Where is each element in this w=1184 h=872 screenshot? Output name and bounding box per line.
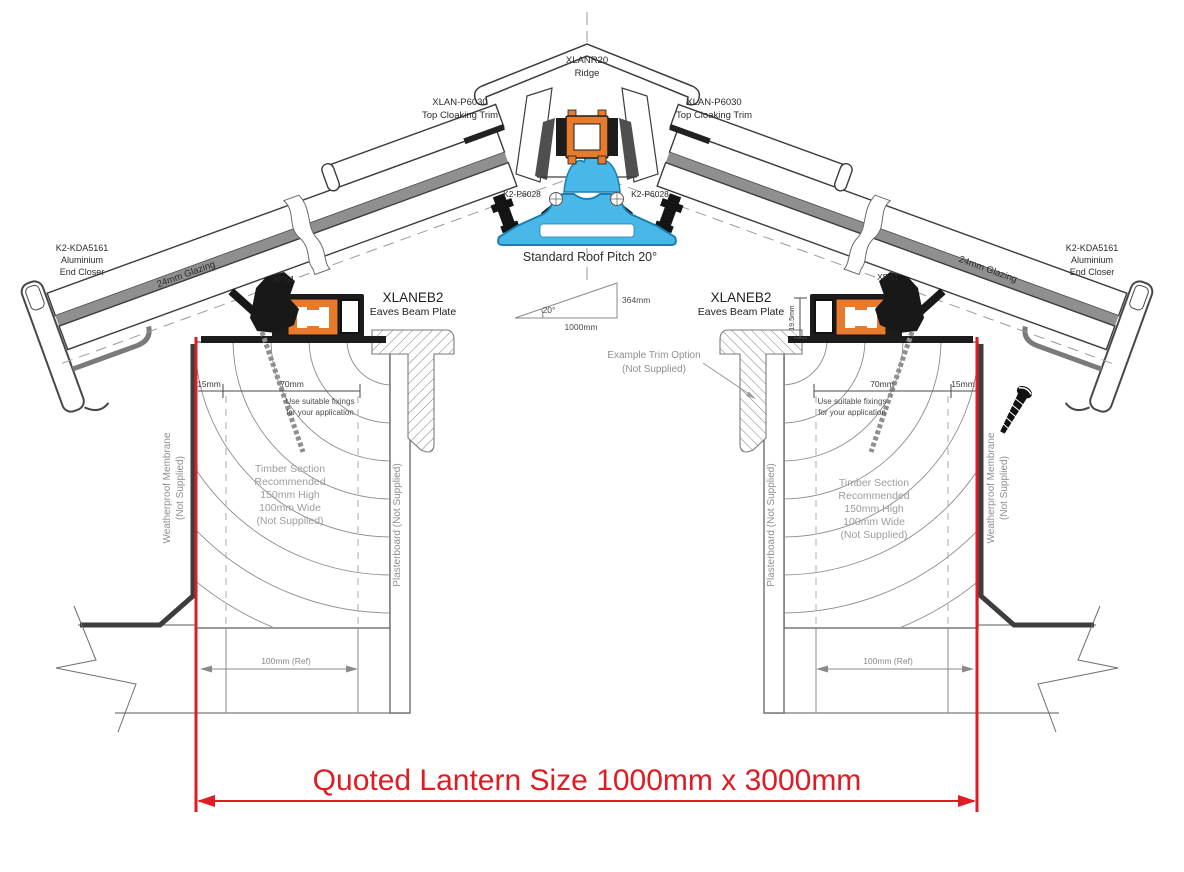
fixing-note-1-right: Use suitable fixings (818, 397, 887, 406)
timber-note-left-1: Timber Section (255, 463, 325, 475)
end-closer-code-left: K2-KDA5161 (56, 243, 109, 253)
eaves-beam-name-left: Eaves Beam Plate (370, 306, 457, 318)
beam-chamber (341, 300, 359, 333)
xps-label-left: XPS1 (273, 274, 295, 284)
cloaking-name-label-left: Top Cloaking Trim (422, 110, 498, 121)
timber-note-right-3: 150mm High (844, 503, 904, 515)
timber-note-left-5: (Not Supplied) (256, 515, 323, 527)
plasterboard-label-right: Plasterboard (Not Supplied) (766, 463, 777, 586)
dim-100mm-left (200, 666, 358, 673)
eaves-beam-code-right: XLANEB2 (711, 290, 772, 305)
trim-option-label-2: (Not Supplied) (622, 364, 686, 375)
dim-19-5mm: 19.5mm (789, 305, 796, 330)
ridge-code-label: XLANR20 (566, 55, 608, 66)
cloaking-name-label-right: Top Cloaking Trim (676, 110, 752, 121)
cloaking-code-label-right: XLAN-P6030 (686, 97, 741, 108)
ref-100mm-left: 100mm (Ref) (261, 656, 311, 666)
ref-100mm-right: 100mm (Ref) (863, 656, 913, 666)
dim-70mm-right: 70mm (870, 379, 894, 389)
end-closer-line3-left: End Closer (60, 267, 105, 277)
end-closer-code-right: K2-KDA5161 (1066, 243, 1119, 253)
eaves-beam-code-left: XLANEB2 (383, 290, 444, 305)
lantern-cross-section-diagram: XLANR20 Ridge XLAN-P6030 Top Cloaking Tr… (0, 0, 1184, 872)
pitch-label: Standard Roof Pitch 20° (523, 250, 657, 264)
fixing-note-2-right: for your application (818, 408, 886, 417)
ridge-clamp-boss-left (550, 193, 563, 206)
ridge-clamp-boss-right (611, 193, 624, 206)
pitch-run-label: 1000mm (564, 322, 597, 332)
timber-note-left-2: Recommended (254, 476, 325, 488)
pitch-rise-label: 364mm (622, 295, 650, 305)
end-closer-line3-right: End Closer (1070, 267, 1115, 277)
ridge-name-label: Ridge (575, 68, 600, 79)
ridge-clamp-label-left: K2-P6028 (503, 189, 541, 199)
plasterboard-label-left: Plasterboard (Not Supplied) (392, 463, 403, 586)
end-closer-line2-right: Aluminium (1071, 255, 1113, 265)
dim-15mm-right: 15mm (951, 379, 975, 389)
cloaking-code-label-left: XLAN-P6030 (432, 97, 487, 108)
timber-note-left-4: 100mm Wide (259, 502, 321, 514)
quoted-size-label: Quoted Lantern Size 1000mm x 3000mm (313, 764, 862, 797)
ridge-thermal-break (556, 110, 618, 164)
end-closer-line2-left: Aluminium (61, 255, 103, 265)
membrane-label-2-right: (Not Supplied) (999, 456, 1010, 520)
membrane-label-2-left: (Not Supplied) (175, 456, 186, 520)
dim-100mm-right (816, 666, 974, 673)
pitch-triangle (515, 283, 617, 318)
eaves-beam-name-right: Eaves Beam Plate (698, 306, 785, 318)
fixing-note-2-left: for your application (286, 408, 354, 417)
membrane-label-1-left: Weatherproof Membrane (162, 432, 173, 543)
timber-note-right-1: Timber Section (839, 477, 909, 489)
timber-note-right-4: 100mm Wide (843, 516, 905, 528)
end-closer-foot (84, 399, 109, 414)
lantern-section-drawing: XLANR20 Ridge XLAN-P6030 Top Cloaking Tr… (0, 0, 1184, 872)
timber-note-right-2: Recommended (838, 490, 909, 502)
timber-note-right-5: (Not Supplied) (840, 529, 907, 541)
ridge-clamp-label-right: K2-P6028 (631, 189, 669, 199)
trim-option-label-1: Example Trim Option (607, 350, 700, 361)
pitch-angle-label: 20° (543, 305, 556, 315)
membrane-label-1-right: Weatherproof Membrane (986, 432, 997, 543)
timber-note-left-3: 150mm High (260, 489, 320, 501)
dim-15mm-left: 15mm (197, 379, 221, 389)
dim-70mm-left: 70mm (280, 379, 304, 389)
screw-icon (996, 383, 1034, 436)
fixing-note-1-left: Use suitable fixings (286, 397, 355, 406)
xps-label-right: XPS1 (877, 272, 899, 282)
